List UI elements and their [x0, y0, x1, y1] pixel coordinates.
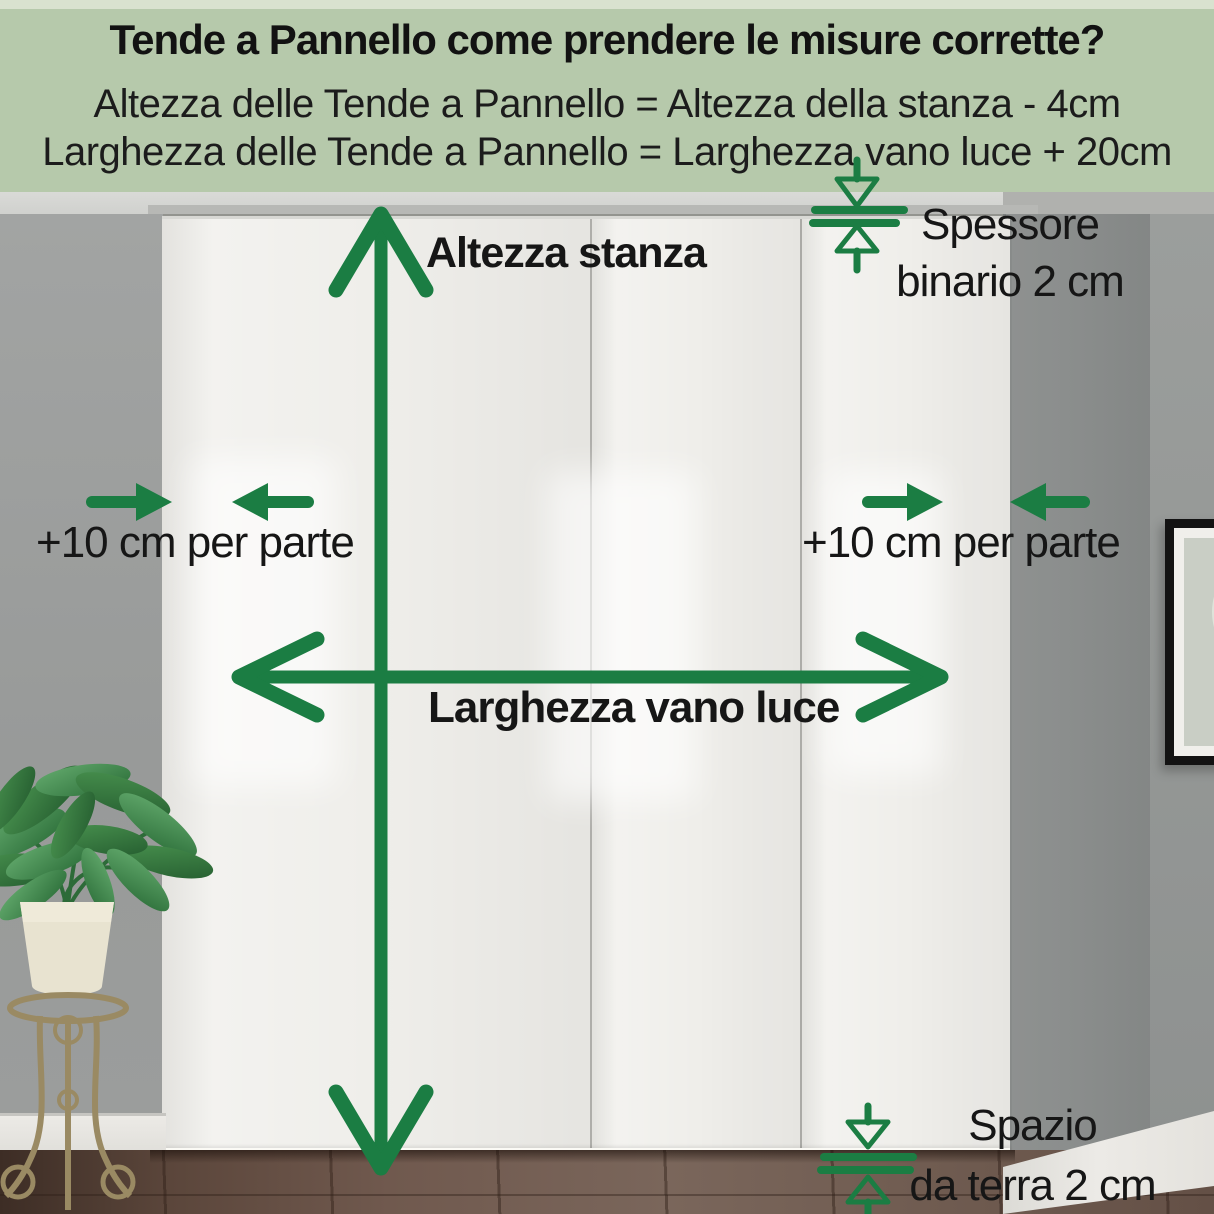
measurement-infographic: Tende a Pannello come prendere le misure… [0, 0, 1214, 1214]
header-top-strip [0, 0, 1214, 9]
formula-height: Altezza delle Tende a Pannello = Altezza… [0, 82, 1214, 127]
room-height-label: Altezza stanza [426, 229, 706, 278]
formula-width: Larghezza delle Tende a Pannello = Largh… [0, 130, 1214, 175]
floor-shadow [150, 1150, 1015, 1163]
rail-thickness-label-line1: Spessore [877, 196, 1143, 253]
floor-gap-label: Spazio da terra 2 cm [900, 1096, 1165, 1214]
floor-gap-label-line2: da terra 2 cm [900, 1156, 1165, 1214]
header-banner: Tende a Pannello come prendere le misure… [0, 0, 1214, 192]
side-margin-right-label: +10 cm per parte [802, 518, 1120, 568]
rail-thickness-label: Spessore binario 2 cm [877, 196, 1143, 310]
opening-width-label: Larghezza vano luce [428, 683, 839, 733]
picture-frame [1165, 519, 1214, 765]
floor-gap-label-line1: Spazio [900, 1096, 1165, 1156]
wall-right-recess [1003, 214, 1156, 1214]
rail-thickness-label-line2: binario 2 cm [877, 253, 1143, 310]
plant-pot [20, 902, 114, 995]
picture-frame-art [1184, 538, 1214, 746]
page-title: Tende a Pannello come prendere le misure… [0, 16, 1214, 64]
potted-plant [0, 740, 220, 1214]
light-patch [827, 471, 942, 776]
side-margin-left-label: +10 cm per parte [36, 518, 354, 568]
plant-stand [3, 995, 133, 1210]
light-patch [192, 457, 337, 787]
light-patch [547, 471, 697, 801]
